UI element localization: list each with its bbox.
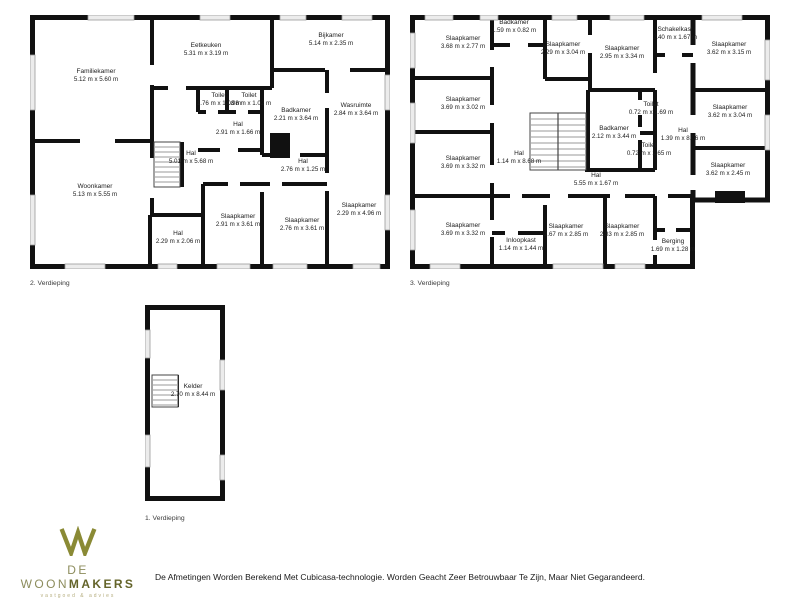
room-dims: 3.68 m x 2.77 m (441, 43, 485, 51)
room-name: Slaapkamer (337, 202, 381, 210)
room-label: Hal5.55 m x 1.67 m (574, 172, 618, 189)
room-name: Slaapkamer (441, 96, 485, 104)
room-name: Slaapkamer (441, 222, 485, 230)
chimney-shaft (270, 133, 290, 158)
room-label: Slaapkamer3.69 m x 3.02 m (441, 96, 485, 113)
room-dims: 5.55 m x 1.67 m (574, 180, 618, 188)
room-dims: 1.98 m x 1.02 m (227, 100, 271, 108)
room-name: Slaapkamer (441, 155, 485, 163)
room-label: Slaapkamer3.62 m x 3.15 m (707, 41, 751, 58)
room-dims: 3.69 m x 3.02 m (441, 104, 485, 112)
room-label: Berging1.69 m x 1.28 m (651, 238, 695, 255)
room-dims: 3.69 m x 3.32 m (441, 230, 485, 238)
floor-label-1-verdieping: 1. Verdieping (145, 515, 185, 522)
room-dims: 2.70 m x 8.44 m (171, 391, 215, 399)
room-label: Woonkamer5.13 m x 5.55 m (73, 183, 117, 200)
room-name: Hal (661, 127, 705, 135)
room-dims: 1.14 m x 8.68 m (497, 158, 541, 166)
room-name: Inloopkast (499, 237, 543, 245)
room-dims: 2.29 m x 3.04 m (541, 49, 585, 57)
room-dims: 2.67 m x 2.85 m (544, 231, 588, 239)
room-label: Slaapkamer2.76 m x 3.61 m (280, 217, 324, 234)
room-dims: 0.72 m x 1.65 m (627, 150, 671, 158)
room-name: Badkamer (492, 19, 536, 27)
room-label: Badkamer1.59 m x 0.82 m (492, 19, 536, 36)
room-label: Hal1.14 m x 8.68 m (497, 150, 541, 167)
room-name: Hal (216, 121, 260, 129)
room-dims: 3.62 m x 2.45 m (706, 170, 750, 178)
brand-tagline: vastgoed & advies (14, 593, 142, 599)
room-dims: 1.59 m x 0.82 m (492, 27, 536, 35)
room-label: Eetkeuken5.31 m x 3.19 m (184, 42, 228, 59)
room-name: Slaapkamer (541, 41, 585, 49)
room-name: Toilet (629, 101, 673, 109)
room-dims: 2.83 m x 2.85 m (600, 231, 644, 239)
room-label: Inloopkast1.14 m x 1.44 m (499, 237, 543, 254)
woonmakers-logo: DE WOONMAKERS vastgoed & advies (14, 526, 142, 599)
room-name: Bijkamer (309, 32, 353, 40)
room-name: Badkamer (592, 125, 636, 133)
room-label: Hal2.76 m x 1.25 m (281, 158, 325, 175)
room-label: Slaapkamer2.91 m x 3.61 m (216, 213, 260, 230)
room-label: Badkamer2.12 m x 3.44 m (592, 125, 636, 142)
room-dims: 2.84 m x 3.64 m (334, 110, 378, 118)
room-label: Hal5.01 m x 5.68 m (169, 150, 213, 167)
room-dims: 5.14 m x 2.35 m (309, 40, 353, 48)
floor-label-3-verdieping: 3. Verdieping (410, 280, 450, 287)
room-dims: 3.62 m x 3.04 m (708, 112, 752, 120)
room-label: Toilet0.72 m x 1.69 m (629, 101, 673, 118)
room-dims: 2.40 m x 1.67 m (653, 34, 697, 42)
room-label: Toilet1.98 m x 1.02 m (227, 92, 271, 109)
room-label: Slaapkamer3.69 m x 3.32 m (441, 222, 485, 239)
room-label: Wasruimte2.84 m x 3.64 m (334, 102, 378, 119)
room-label: Hal2.91 m x 1.66 m (216, 121, 260, 138)
room-label: Slaapkamer3.62 m x 2.45 m (706, 162, 750, 179)
room-name: Slaapkamer (706, 162, 750, 170)
room-label: Familiekamer5.12 m x 5.60 m (74, 68, 118, 85)
room-dims: 2.12 m x 3.44 m (592, 133, 636, 141)
room-name: Slaapkamer (600, 223, 644, 231)
floorplan-1-verdieping-kelder (145, 305, 225, 501)
room-name: Slaapkamer (280, 217, 324, 225)
room-name: Woonkamer (73, 183, 117, 191)
room-name: Hal (497, 150, 541, 158)
room-dims: 1.39 m x 8.06 m (661, 135, 705, 143)
disclaimer-text: De Afmetingen Worden Berekend Met Cubica… (0, 572, 800, 582)
logo-w-icon (59, 526, 97, 556)
room-name: Slaapkamer (707, 41, 751, 49)
room-dims: 2.91 m x 1.66 m (216, 129, 260, 137)
room-dims: 0.72 m x 1.69 m (629, 109, 673, 117)
room-label: Slaapkamer3.69 m x 3.32 m (441, 155, 485, 172)
room-label: Slaapkamer2.95 m x 3.34 m (600, 45, 644, 62)
room-dims: 5.12 m x 5.60 m (74, 76, 118, 84)
room-label: Slaapkamer2.29 m x 3.04 m (541, 41, 585, 58)
room-dims: 2.29 m x 2.06 m (156, 238, 200, 246)
room-label: Badkamer2.21 m x 3.64 m (274, 107, 318, 124)
room-name: Hal (574, 172, 618, 180)
room-name: Slaapkamer (544, 223, 588, 231)
room-name: Kelder (171, 383, 215, 391)
room-name: Slaapkamer (600, 45, 644, 53)
room-dims: 5.01 m x 5.68 m (169, 158, 213, 166)
room-dims: 1.69 m x 1.28 m (651, 246, 695, 254)
room-label: Slaapkamer2.83 m x 2.85 m (600, 223, 644, 240)
room-label: Slaapkamer2.29 m x 4.96 m (337, 202, 381, 219)
room-name: Schakelkast (653, 26, 697, 34)
room-name: Berging (651, 238, 695, 246)
room-dims: 2.76 m x 1.25 m (281, 166, 325, 174)
room-dims: 2.91 m x 3.61 m (216, 221, 260, 229)
room-label: Bijkamer5.14 m x 2.35 m (309, 32, 353, 49)
room-name: Eetkeuken (184, 42, 228, 50)
room-name: Slaapkamer (708, 104, 752, 112)
room-dims: 2.95 m x 3.34 m (600, 53, 644, 61)
room-label: Slaapkamer3.68 m x 2.77 m (441, 35, 485, 52)
room-name: Familiekamer (74, 68, 118, 76)
room-label: Kelder2.70 m x 8.44 m (171, 383, 215, 400)
room-name: Toilet (227, 92, 271, 100)
room-name: Hal (169, 150, 213, 158)
room-dims: 5.13 m x 5.55 m (73, 191, 117, 199)
room-label: Slaapkamer3.62 m x 3.04 m (708, 104, 752, 121)
room-dims: 1.14 m x 1.44 m (499, 245, 543, 253)
room-name: Slaapkamer (441, 35, 485, 43)
room-dims: 2.21 m x 3.64 m (274, 115, 318, 123)
room-name: Badkamer (274, 107, 318, 115)
room-label: Schakelkast2.40 m x 1.67 m (653, 26, 697, 43)
room-label: Toilet0.72 m x 1.65 m (627, 142, 671, 159)
room-name: Hal (281, 158, 325, 166)
room-name: Hal (156, 230, 200, 238)
room-label: Hal2.29 m x 2.06 m (156, 230, 200, 247)
room-dims: 3.69 m x 3.32 m (441, 163, 485, 171)
room-name: Slaapkamer (216, 213, 260, 221)
room-dims: 3.62 m x 3.15 m (707, 49, 751, 57)
floor-label-2-verdieping: 2. Verdieping (30, 280, 70, 287)
room-dims: 5.31 m x 3.19 m (184, 50, 228, 58)
room-label: Hal1.39 m x 8.06 m (661, 127, 705, 144)
room-dims: 2.76 m x 3.61 m (280, 225, 324, 233)
room-name: Wasruimte (334, 102, 378, 110)
balcony-marker (715, 191, 745, 203)
room-label: Slaapkamer2.67 m x 2.85 m (544, 223, 588, 240)
room-dims: 2.29 m x 4.96 m (337, 210, 381, 218)
